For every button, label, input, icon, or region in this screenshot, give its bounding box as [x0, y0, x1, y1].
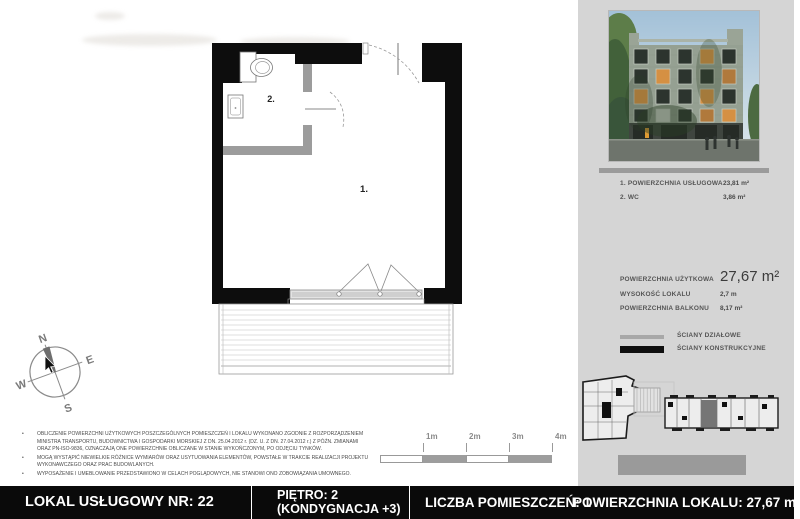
disclaimer-bullet: • OBLICZENIE POWIERZCHNI UŻYTKOWYCH POSZ… — [20, 431, 372, 454]
scale-tick — [509, 443, 510, 452]
scale-segment — [423, 455, 466, 463]
disclaimer-bullet: • WYPOSAŻENIE I UMEBLOWANIE PRZEDSTAWION… — [20, 471, 372, 479]
room-count-label: LICZBA POMIESZCZEŃ: 1 — [425, 495, 591, 510]
sink-icon — [228, 95, 243, 118]
scale-tick — [423, 443, 424, 452]
room-area: 3,86 m² — [723, 194, 745, 201]
unit-number-label: LOKAL USŁUGOWY NR: 22 — [25, 494, 214, 510]
footer-divider — [251, 486, 252, 519]
info-panel: 1. POWIERZCHNIA USŁUGOWA 23,81 m² 2. WC … — [578, 0, 794, 486]
faint-print-artifact — [95, 12, 125, 20]
bullet-marker: • — [22, 431, 24, 439]
unit-height-label: WYSOKOŚĆ LOKALU — [620, 291, 691, 298]
disclaimer-notes: • OBLICZENIE POWIERZCHNI UŻYTKOWYCH POSZ… — [20, 431, 372, 479]
storey-label: (KONDYGNACJA +3) — [277, 502, 401, 516]
disclaimer-text: WYPOSAŻENIE I UMEBLOWANIE PRZEDSTAWIONO … — [37, 471, 351, 477]
title-bar: LOKAL USŁUGOWY NR: 22 PIĘTRO: 2 (KONDYGN… — [0, 486, 794, 519]
table-row: 1. POWIERZCHNIA USŁUGOWA 23,81 m² — [620, 180, 785, 194]
usable-area-label: POWIERZCHNIA UŻYTKOWA — [620, 276, 714, 283]
scale-tick — [466, 443, 467, 452]
bullet-marker: • — [22, 455, 24, 463]
scale-segment — [380, 455, 423, 463]
partition-wall-swatch — [620, 335, 664, 339]
building-photo — [608, 10, 760, 162]
scale-segment — [509, 455, 552, 463]
disclaimer-text: MOGĄ WYSTĄPIĆ NIEWIELKIE RÓŻNICE WYMIARÓ… — [37, 455, 368, 469]
unit-floor-plan: 2. 1. — [195, 25, 485, 385]
total-area-label: POWIERZCHNIA LOKALU: 27,67 m² — [573, 495, 800, 510]
structural-wall-swatch — [620, 346, 664, 353]
bullet-marker: • — [22, 471, 24, 479]
building-key-plan — [578, 372, 788, 448]
scale-label: 2m — [469, 432, 481, 441]
scale-label: 4m — [555, 432, 567, 441]
balcony-area-value: 8,17 m² — [720, 305, 742, 312]
compass-south-label: S — [63, 402, 74, 416]
compass-north-label: N — [37, 332, 49, 346]
balcony-area-label: POWIERZCHNIA BALKONU — [620, 305, 709, 312]
structural-wall-label: ŚCIANY KONSTRUKCYJNE — [677, 345, 766, 352]
partition-wall-label: ŚCIANY DZIAŁOWE — [677, 332, 741, 339]
scale-tick — [552, 443, 553, 452]
disclaimer-bullet: • MOGĄ WYSTĄPIĆ NIEWIELKIE RÓŻNICE WYMIA… — [20, 455, 372, 470]
room-name: 2. WC — [620, 194, 639, 201]
compass-rose-icon: N E S W — [15, 330, 105, 420]
scale-label: 3m — [512, 432, 524, 441]
compass-west-label: W — [15, 378, 29, 393]
scale-label: 1m — [426, 432, 438, 441]
footer-divider — [409, 486, 410, 519]
room-area-table: 1. POWIERZCHNIA USŁUGOWA 23,81 m² 2. WC … — [620, 180, 785, 208]
table-row: 2. WC 3,86 m² — [620, 194, 785, 208]
section-divider — [599, 168, 769, 173]
site-block — [618, 455, 746, 475]
room-label-wc: 2. — [267, 94, 275, 104]
room-label-main: 1. — [360, 184, 368, 195]
usable-area-value: 27,67 m² — [720, 268, 779, 285]
highlighted-unit — [701, 400, 717, 427]
balcony — [219, 304, 453, 374]
room-area: 23,81 m² — [723, 180, 749, 187]
compass-east-label: E — [85, 353, 96, 367]
floor-label: PIĘTRO: 2 — [277, 488, 338, 502]
scale-bar: 1m 2m 3m 4m — [380, 431, 560, 465]
floor-plan-sheet: 2. 1. N E S W • OBLICZENIE POWIERZCHNI U… — [0, 0, 800, 519]
disclaimer-text: OBLICZENIE POWIERZCHNI UŻYTKOWYCH POSZCZ… — [37, 431, 363, 452]
scale-segment — [466, 455, 509, 463]
mouse-cursor-icon — [44, 356, 58, 376]
unit-height-value: 2,7 m — [720, 291, 737, 298]
room-name: 1. POWIERZCHNIA USŁUGOWA — [620, 180, 723, 187]
